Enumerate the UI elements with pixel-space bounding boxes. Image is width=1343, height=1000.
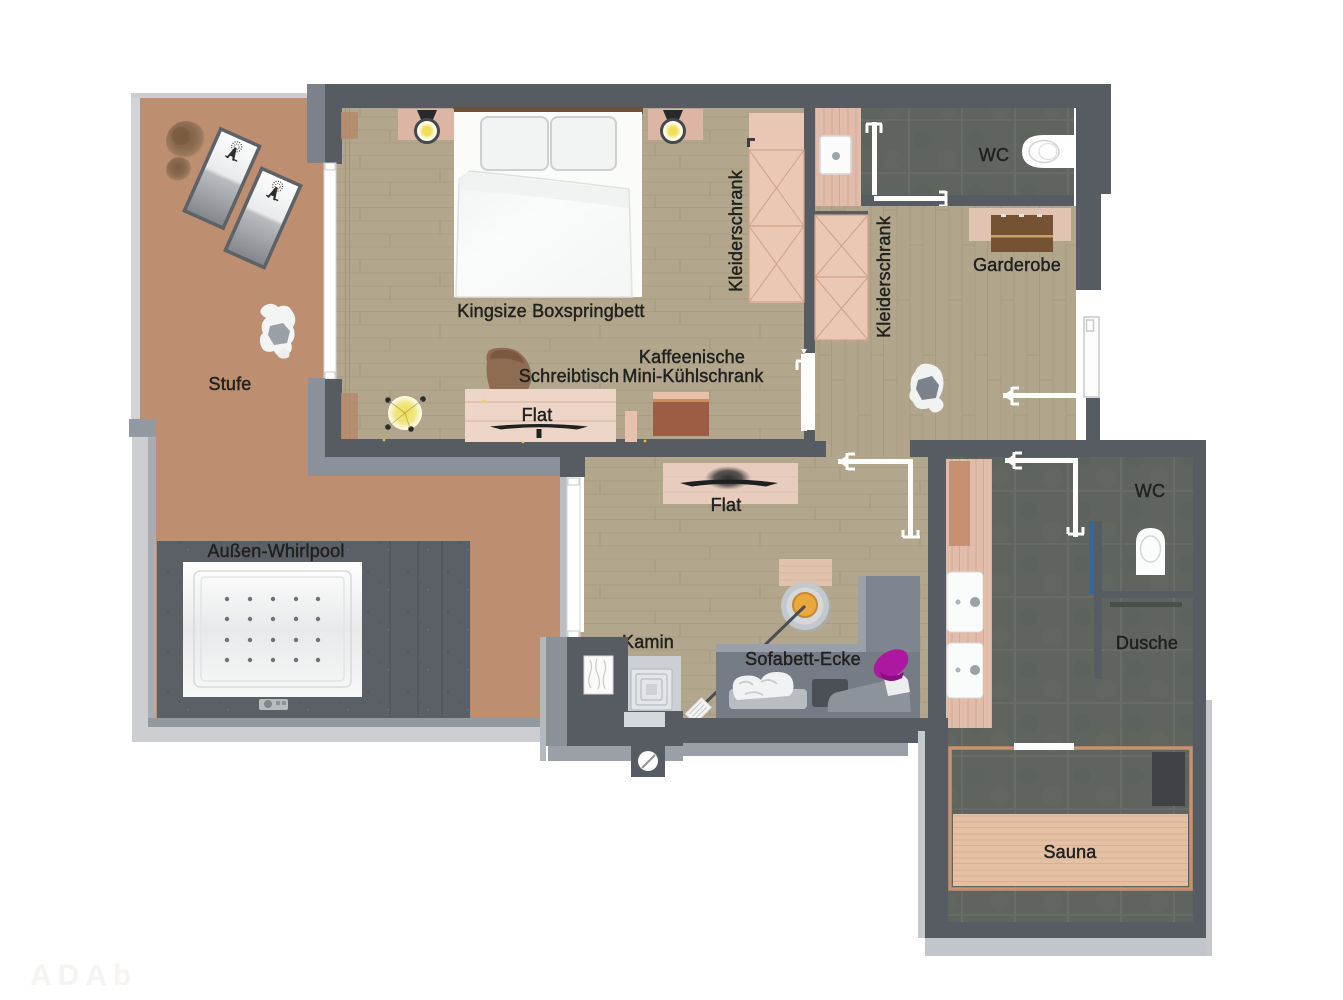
svg-text:ADAb: ADAb: [30, 959, 137, 992]
svg-text:Kamin: Kamin: [622, 632, 674, 652]
svg-text:Sauna: Sauna: [1043, 842, 1097, 862]
svg-text:WC: WC: [1135, 481, 1165, 501]
svg-text:Mini-Kühlschrank: Mini-Kühlschrank: [622, 366, 764, 386]
svg-text:Kingsize Boxspringbett: Kingsize Boxspringbett: [457, 301, 645, 321]
svg-text:Flat: Flat: [522, 405, 553, 425]
svg-text:Kleiderschrank: Kleiderschrank: [874, 215, 894, 338]
svg-text:Schreibtisch: Schreibtisch: [519, 366, 619, 386]
svg-text:Flat: Flat: [711, 495, 742, 515]
svg-text:Garderobe: Garderobe: [973, 255, 1061, 275]
svg-text:Dusche: Dusche: [1116, 633, 1178, 653]
svg-text:Sofabett-Ecke: Sofabett-Ecke: [745, 649, 861, 669]
svg-text:Außen-Whirlpool: Außen-Whirlpool: [207, 541, 344, 561]
svg-text:Kaffeenische: Kaffeenische: [639, 347, 745, 367]
svg-text:Stufe: Stufe: [208, 374, 251, 394]
svg-text:WC: WC: [979, 145, 1009, 165]
svg-text:Kleiderschrank: Kleiderschrank: [726, 169, 746, 292]
